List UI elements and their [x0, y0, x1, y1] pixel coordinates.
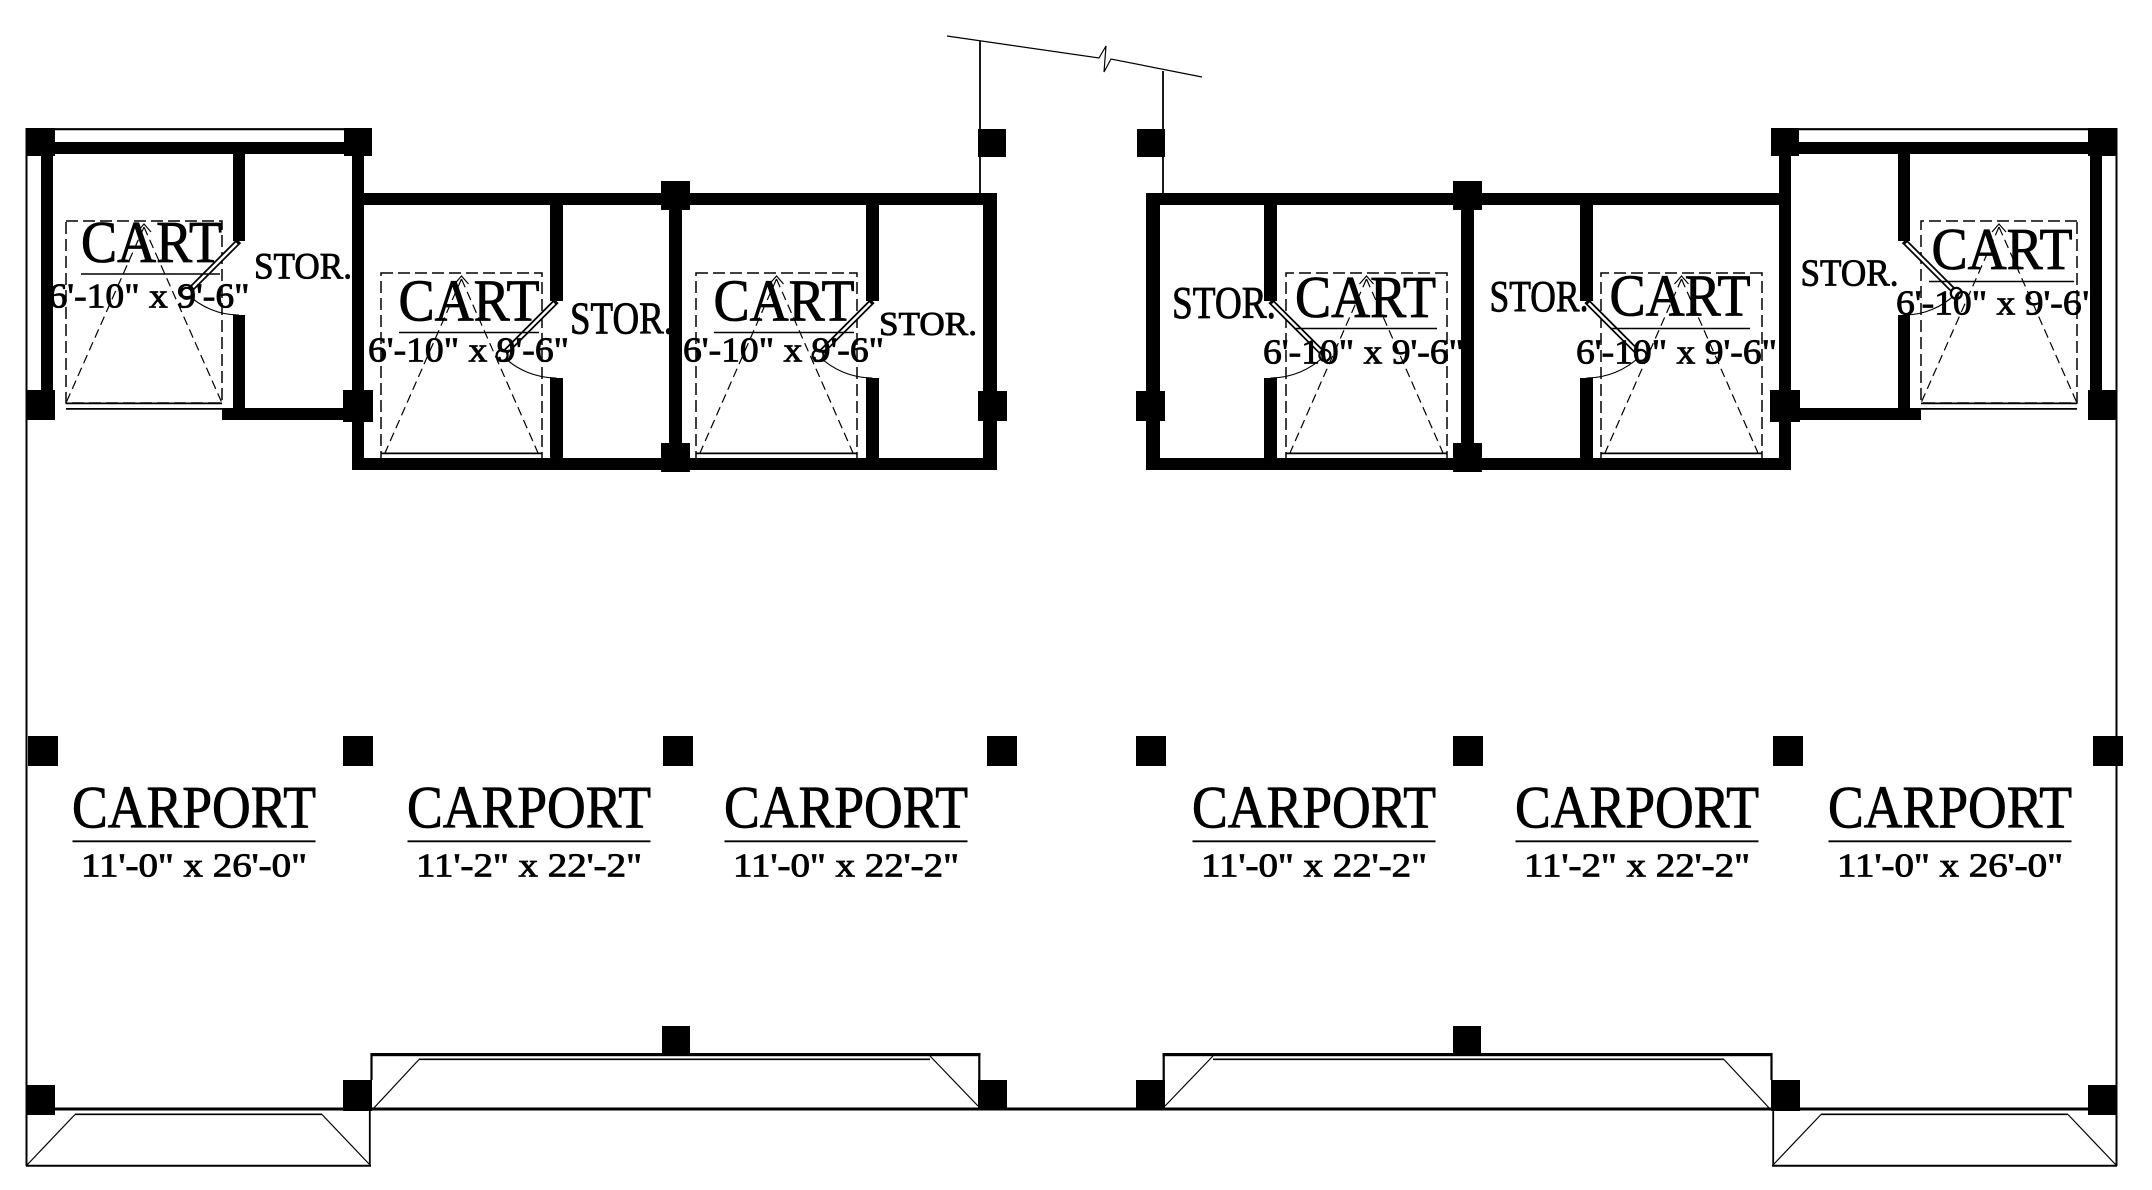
- svg-text:6'-10" x 9'-6": 6'-10" x 9'-6": [368, 331, 569, 370]
- svg-text:CARPORT: CARPORT: [1828, 775, 2072, 841]
- svg-text:11'-0" x 22'-2": 11'-0" x 22'-2": [733, 847, 959, 884]
- svg-text:CART: CART: [399, 268, 540, 334]
- svg-text:CART: CART: [1295, 264, 1436, 330]
- svg-text:CART: CART: [714, 268, 855, 334]
- svg-text:11'-2" x 22'-2": 11'-2" x 22'-2": [416, 847, 642, 884]
- svg-text:11'-0" x 26'-0": 11'-0" x 26'-0": [81, 847, 307, 884]
- svg-text:STOR.: STOR.: [254, 247, 352, 288]
- svg-text:11'-0" x 26'-0": 11'-0" x 26'-0": [1837, 847, 2063, 884]
- svg-text:CART: CART: [1932, 216, 2073, 282]
- svg-text:STOR.: STOR.: [1490, 272, 1589, 321]
- svg-text:6'-10" x 9'-6": 6'-10" x 9'-6": [683, 331, 884, 370]
- svg-text:CARPORT: CARPORT: [1192, 775, 1436, 841]
- svg-text:STOR.: STOR.: [879, 306, 977, 343]
- svg-text:CARPORT: CARPORT: [1515, 775, 1759, 841]
- svg-text:STOR.: STOR.: [1801, 253, 1899, 295]
- svg-text:6'-10" x 9'-6": 6'-10" x 9'-6": [1576, 333, 1777, 372]
- svg-text:CARPORT: CARPORT: [72, 775, 316, 841]
- svg-text:11'-0" x 22'-2": 11'-0" x 22'-2": [1201, 847, 1427, 884]
- svg-text:CART: CART: [1610, 263, 1751, 329]
- svg-text:6'-10" x 9'-6": 6'-10" x 9'-6": [49, 277, 250, 316]
- svg-text:CARPORT: CARPORT: [724, 775, 968, 841]
- svg-text:11'-2" x 22'-2": 11'-2" x 22'-2": [1524, 847, 1750, 884]
- svg-text:6'-10" x 9'-6": 6'-10" x 9'-6": [1263, 333, 1464, 372]
- svg-text:6'-10" x 9'-6": 6'-10" x 9'-6": [1896, 284, 2097, 323]
- svg-text:STOR.: STOR.: [570, 294, 673, 344]
- svg-text:STOR.: STOR.: [1172, 277, 1276, 328]
- svg-text:CART: CART: [81, 209, 222, 275]
- svg-text:CARPORT: CARPORT: [407, 775, 651, 841]
